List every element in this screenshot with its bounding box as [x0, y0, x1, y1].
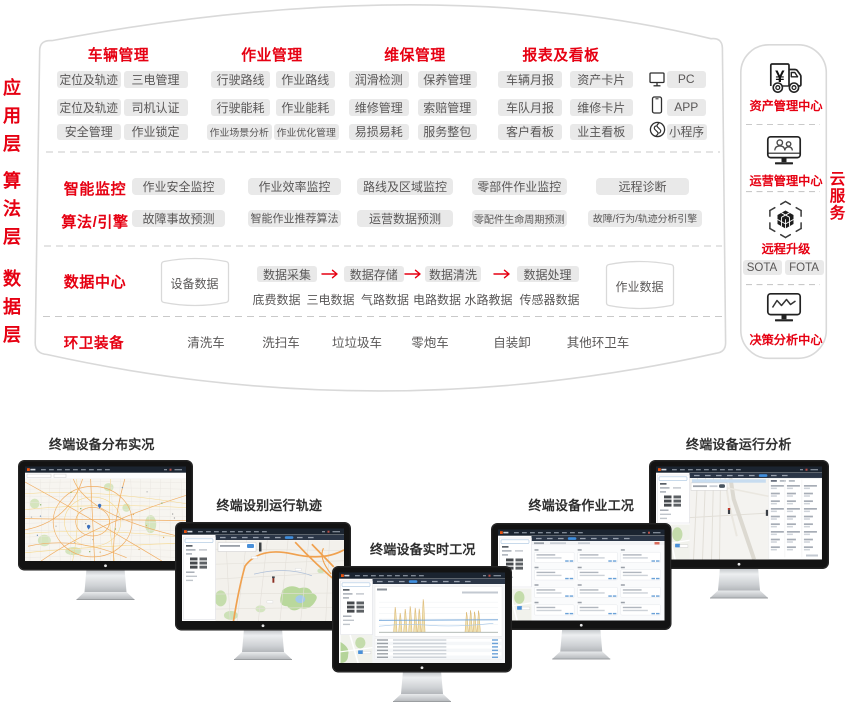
svg-text:¥: ¥ [775, 67, 785, 86]
